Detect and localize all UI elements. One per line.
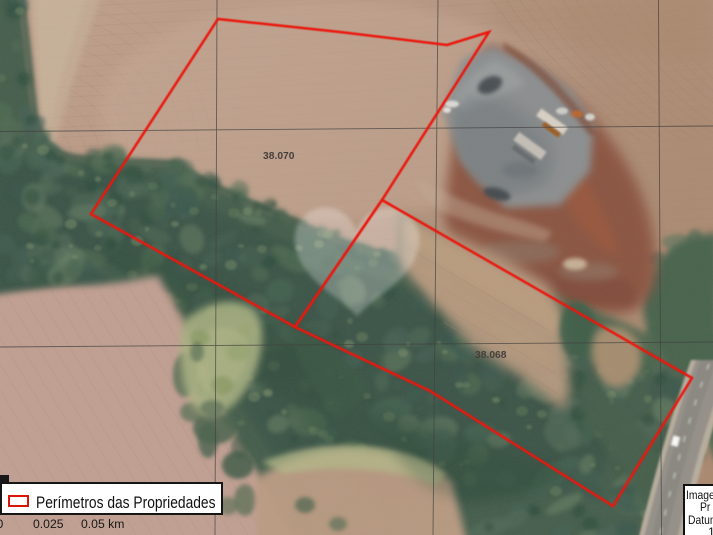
svg-text:38.070: 38.070	[263, 151, 295, 162]
svg-text:38.068: 38.068	[475, 350, 507, 361]
